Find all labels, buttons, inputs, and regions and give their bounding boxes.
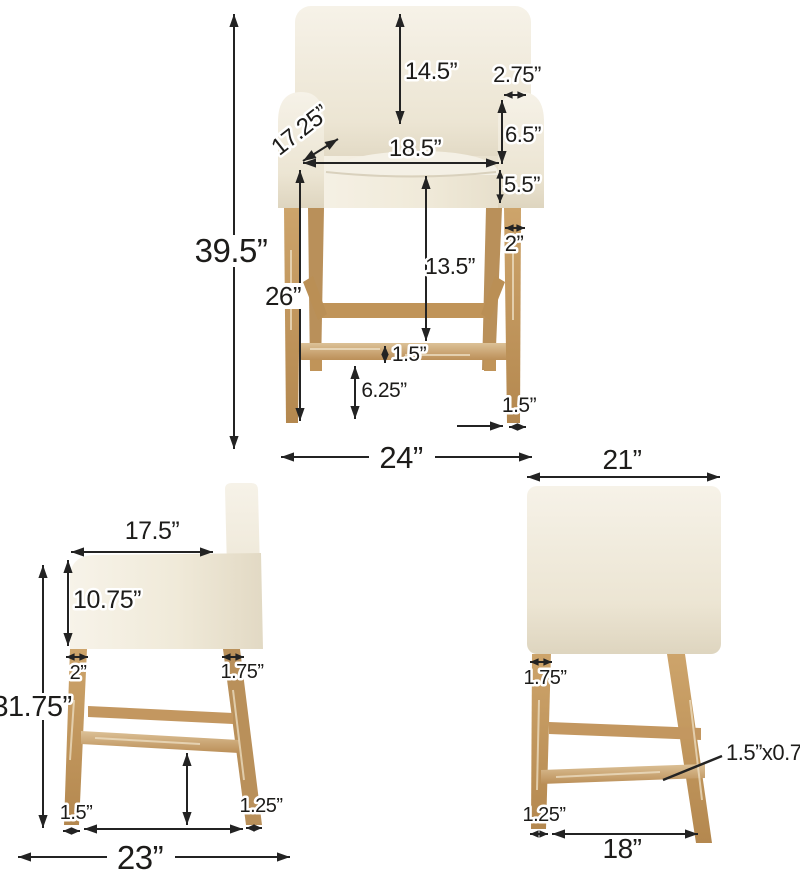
front-front-left-leg [284, 208, 301, 423]
dim-label-seat-to-footrest: 13.5” [425, 253, 475, 279]
dim-label-arm-depth: 17.5” [125, 517, 180, 545]
dim-label-backrest-height: 14.5” [405, 58, 458, 85]
dim-label-overall-depth: 23” [117, 839, 163, 873]
dim-label-footrest-to-floor: 6.25” [361, 379, 407, 402]
product-dimension-diagram: 14.5” 2.75” 17.25” 6.5” 18.5” 5.5” 2” 13… [0, 0, 800, 873]
dim-label-overall-height: 39.5” [195, 232, 268, 269]
dim-label-front-leg-width: 2” [70, 662, 87, 684]
dim-label-stretcher-section: 1.5”x0.75” [726, 740, 800, 765]
dim-label-leg-top-width: 2” [505, 231, 524, 256]
dim-label-back-foot-width: 1.25” [239, 795, 282, 817]
dim-label-arm-height: 31.75” [0, 691, 72, 723]
front-rear-stretcher [321, 303, 485, 318]
dim-label-seat-width: 18.5” [389, 135, 442, 162]
back-view [527, 486, 721, 843]
dim-label-seat-thickness: 5.5” [504, 172, 540, 197]
dim-label-foot-width: 1.5” [502, 394, 537, 417]
dim-label-floor-leg-span: 18” [603, 833, 642, 864]
front-back-left-foot [310, 360, 322, 371]
back-panel [527, 486, 721, 654]
dim-label-arm-top-width: 2.75” [493, 62, 541, 87]
dim-label-front-height: 10.75” [73, 586, 141, 614]
dim-label-footrest-thickness: 1.5” [392, 343, 427, 366]
dim-label-back-leg-top-width: 1.75” [523, 667, 566, 689]
dim-label-seat-height: 26” [265, 281, 301, 311]
dim-label-arm-to-seat: 6.5” [505, 122, 541, 147]
dim-label-back-width: 21” [603, 444, 642, 475]
dim-label-back-leg-width: 1.75” [220, 661, 263, 683]
back-right-leg [667, 654, 712, 843]
front-back-right-foot [484, 360, 496, 371]
dim-label-front-foot-width: 1.5” [60, 802, 92, 824]
stool-dimensions-svg: 14.5” 2.75” 17.25” 6.5” 18.5” 5.5” 2” 13… [0, 0, 800, 873]
dim-label-back-foot-width: 1.25” [522, 804, 565, 826]
side-upper-stretcher [88, 706, 233, 724]
dim-label-overall-width: 24” [379, 440, 422, 475]
